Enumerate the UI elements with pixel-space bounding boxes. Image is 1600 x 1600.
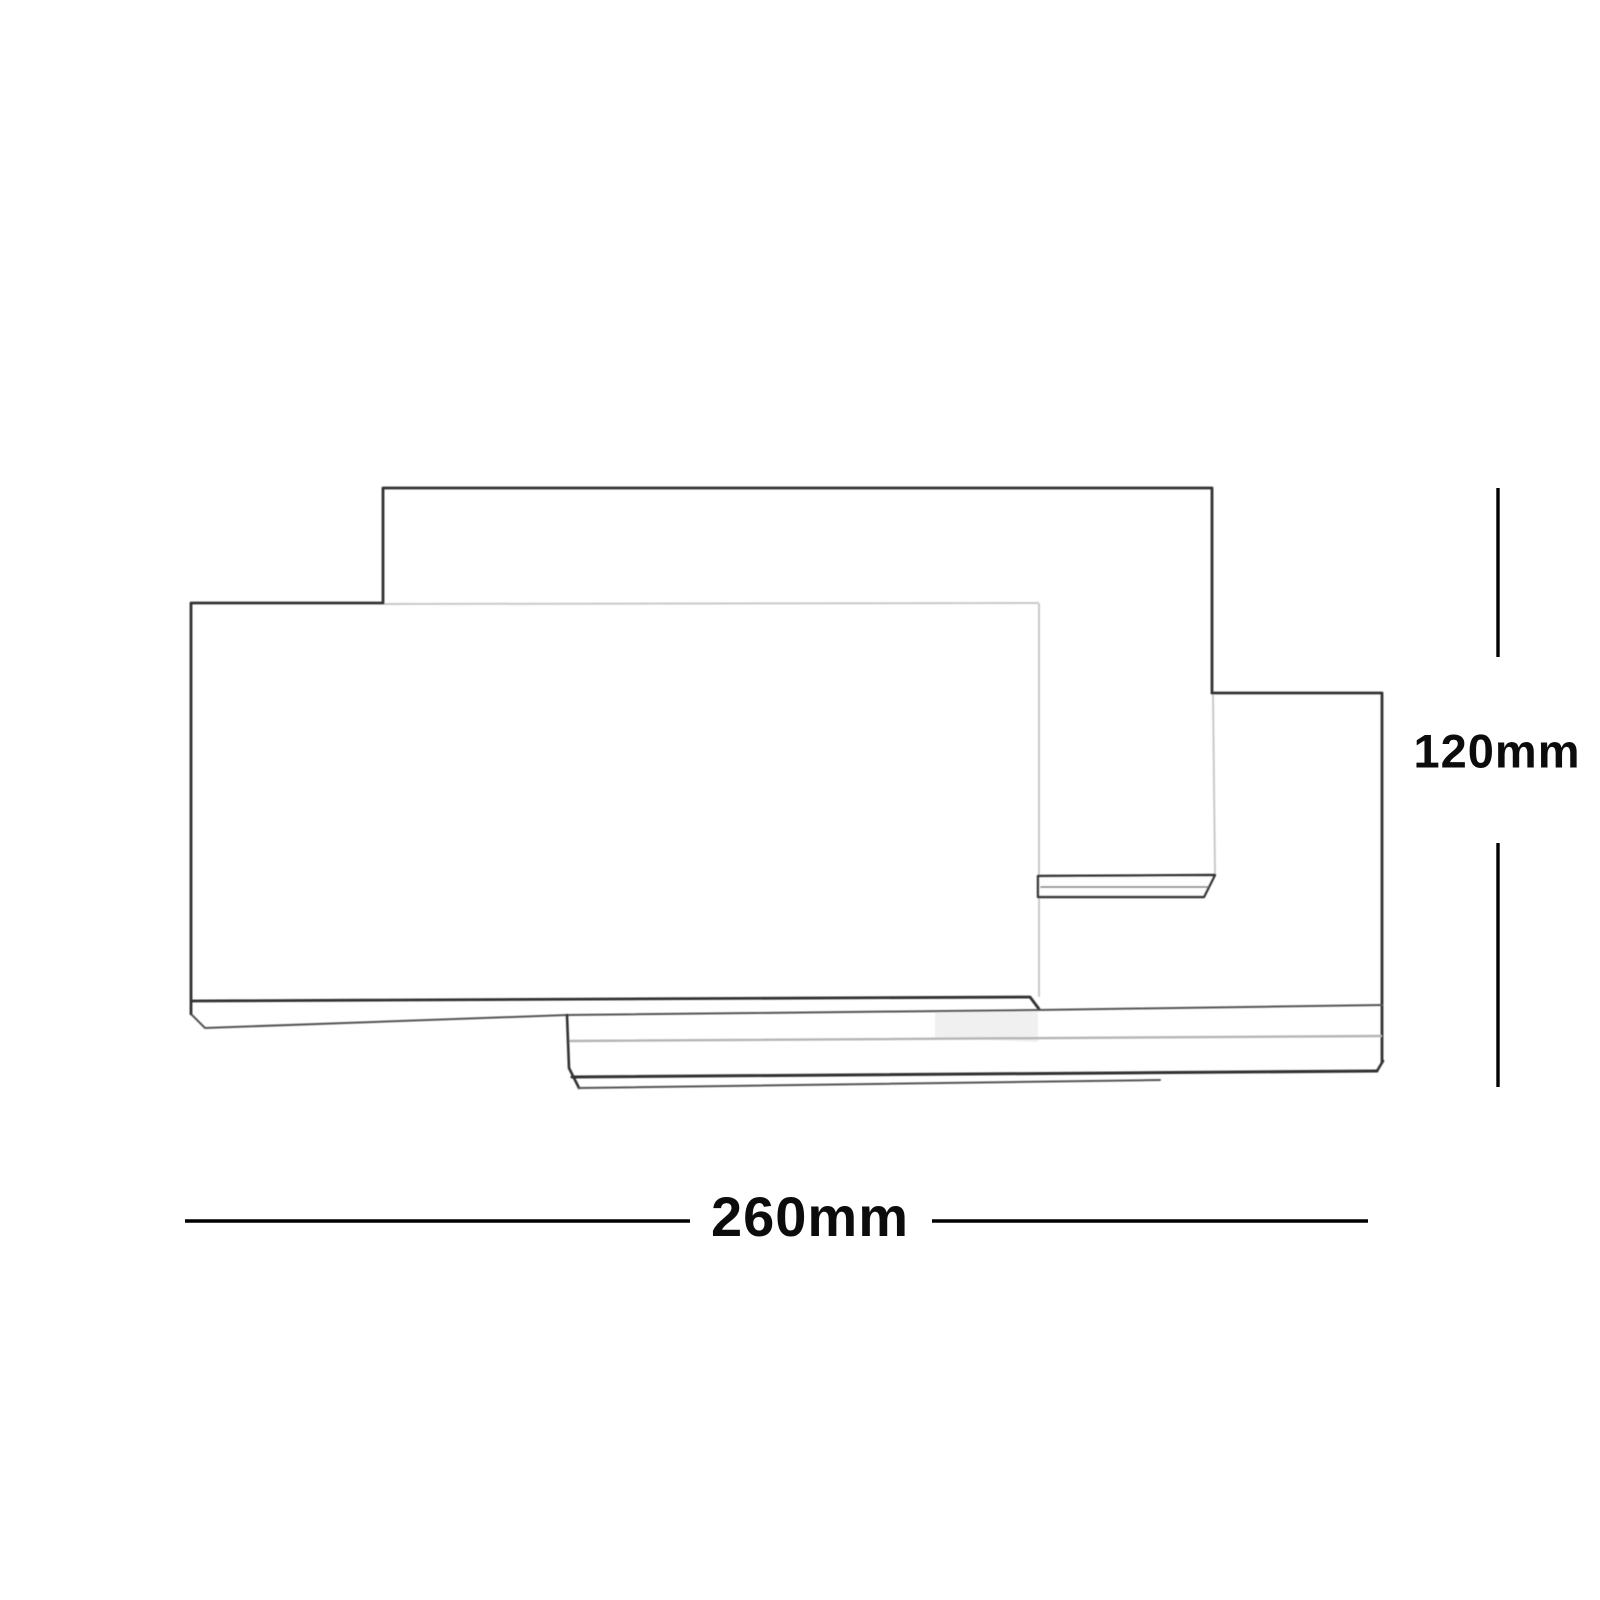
faint-overlap-edges <box>384 603 1215 996</box>
front-panel-outline <box>191 603 1039 1028</box>
height-dimension-label: 120mm <box>1414 728 1581 775</box>
back-panel-ledge <box>1038 875 1215 897</box>
width-dimension-label: 260mm <box>711 1189 909 1245</box>
back-panel-outline <box>383 488 1212 693</box>
dimension-diagram-page: 260mm 120mm <box>0 0 1600 1600</box>
lamp-dimension-drawing <box>0 0 1600 1600</box>
panel-sketch <box>191 488 1383 1088</box>
